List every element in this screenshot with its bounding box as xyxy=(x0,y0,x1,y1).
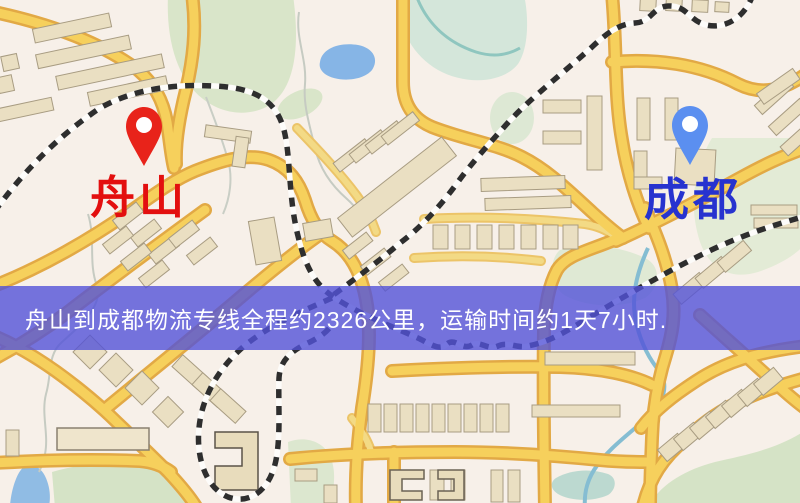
origin-city-label: 舟山 xyxy=(90,176,188,221)
logistics-route-map: 舟山 成都 舟山到成都物流专线全程约2326公里，运输时间约1天7小时. xyxy=(0,0,800,503)
route-info-text: 舟山到成都物流专线全程约2326公里，运输时间约1天7小时. xyxy=(0,301,667,335)
destination-city-label: 成都 xyxy=(644,178,742,223)
map-canvas xyxy=(0,0,800,503)
origin-pin-icon xyxy=(124,106,164,168)
route-info-banner: 舟山到成都物流专线全程约2326公里，运输时间约1天7小时. xyxy=(0,286,800,350)
destination-pin-icon xyxy=(670,105,710,167)
